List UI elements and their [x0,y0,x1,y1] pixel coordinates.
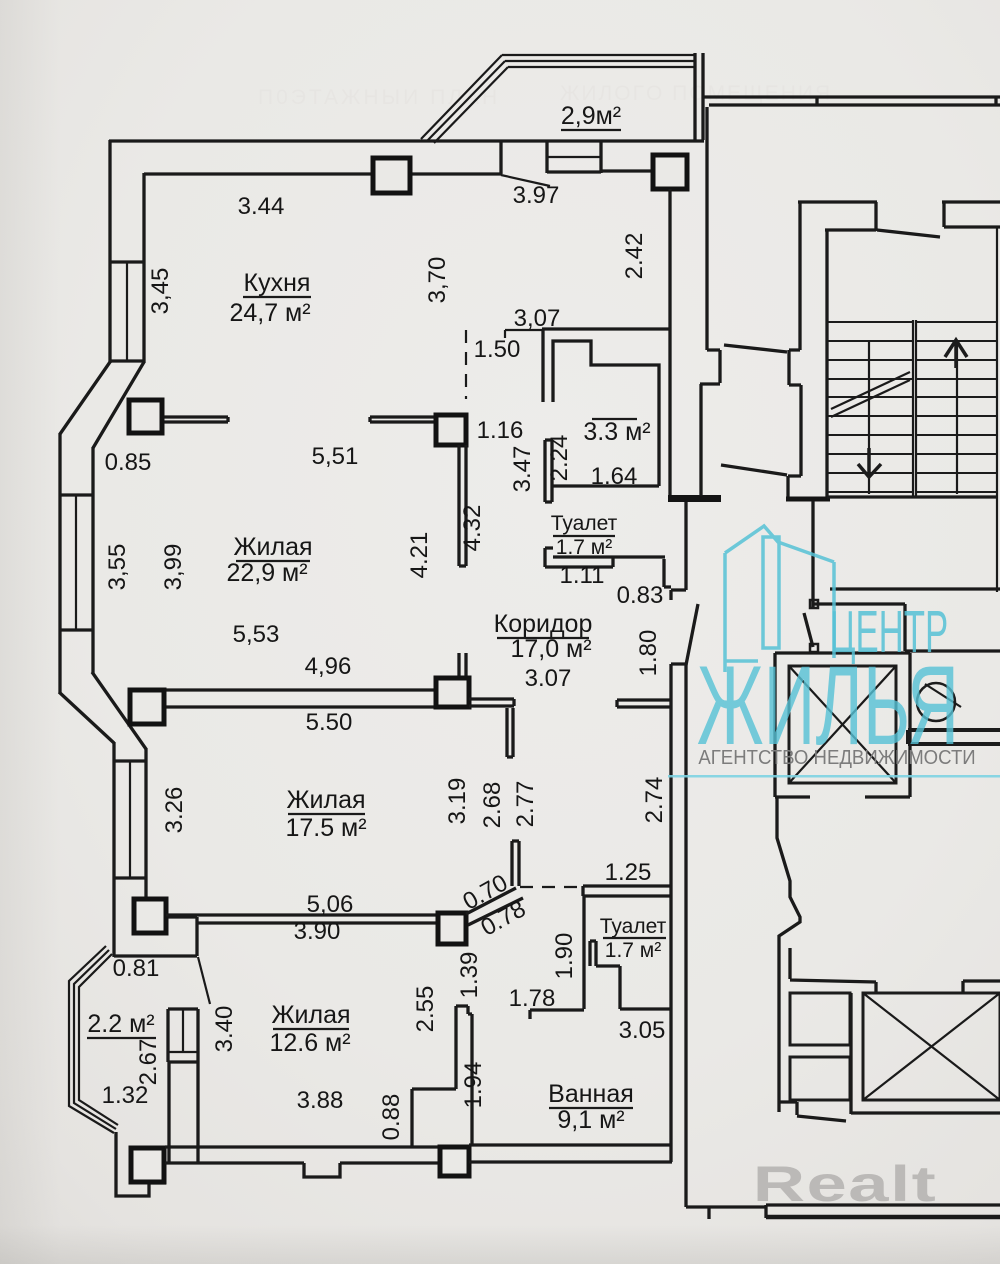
svg-text:3.19: 3.19 [444,778,471,825]
svg-text:Жилая: Жилая [286,786,365,814]
svg-text:3.88: 3.88 [297,1087,344,1114]
svg-text:3,99: 3,99 [160,544,187,591]
svg-text:2.68: 2.68 [479,782,506,829]
svg-text:3.97: 3.97 [513,182,560,209]
svg-text:4.21: 4.21 [406,532,433,579]
svg-text:1.80: 1.80 [635,630,662,677]
svg-text:22,9 м²: 22,9 м² [226,559,307,587]
svg-text:1.16: 1.16 [477,417,524,444]
svg-text:3.90: 3.90 [294,918,341,945]
svg-text:3.26: 3.26 [161,787,188,834]
svg-text:2.77: 2.77 [512,781,539,828]
svg-text:2.42: 2.42 [621,233,648,280]
svg-text:Realt: Realt [753,1157,938,1212]
svg-text:0.83: 0.83 [617,582,664,609]
svg-text:Ванная: Ванная [548,1080,634,1108]
svg-text:1.7 м²: 1.7 м² [605,939,661,962]
svg-text:3.07: 3.07 [525,665,572,692]
svg-text:2.67: 2.67 [135,1039,162,1086]
svg-text:Туалет: Туалет [600,915,667,938]
svg-text:5,06: 5,06 [307,891,354,918]
svg-text:1.50: 1.50 [474,336,521,363]
svg-text:3,07: 3,07 [514,305,561,332]
svg-text:3.47: 3.47 [509,446,536,493]
svg-text:0.81: 0.81 [113,955,160,982]
svg-text:3.05: 3.05 [619,1017,666,1044]
svg-text:Туалет: Туалет [551,512,618,535]
svg-text:5,51: 5,51 [312,443,359,470]
svg-text:Кухня: Кухня [244,269,311,297]
svg-text:4.32: 4.32 [459,505,486,552]
svg-text:2.2 м²: 2.2 м² [87,1010,154,1038]
svg-text:1.64: 1.64 [591,463,638,490]
svg-text:4,96: 4,96 [305,653,352,680]
svg-text:1.11: 1.11 [560,562,605,589]
svg-text:5.50: 5.50 [306,709,353,736]
svg-text:24,7 м²: 24,7 м² [229,299,310,327]
svg-text:1.32: 1.32 [102,1082,149,1109]
svg-text:3,55: 3,55 [104,544,131,591]
svg-text:2.74: 2.74 [641,777,668,824]
svg-text:2.55: 2.55 [412,986,439,1033]
svg-text:17,0 м²: 17,0 м² [510,635,591,663]
svg-text:1.90: 1.90 [551,933,578,980]
svg-text:Жилая: Жилая [233,533,312,561]
svg-text:17.5 м²: 17.5 м² [285,814,366,842]
svg-text:9,1 м²: 9,1 м² [557,1106,624,1134]
svg-text:5,53: 5,53 [233,621,280,648]
svg-text:Коридор: Коридор [494,610,593,638]
svg-text:1.7 м²: 1.7 м² [556,536,612,559]
svg-text:АГЕНТСТВО НЕДВИЖИМОСТИ: АГЕНТСТВО НЕДВИЖИМОСТИ [698,747,975,769]
svg-text:3.40: 3.40 [211,1006,238,1053]
svg-text:1.25: 1.25 [605,859,652,886]
svg-text:2.24: 2.24 [546,435,573,482]
svg-text:12.6 м²: 12.6 м² [269,1029,350,1057]
svg-text:2,9м²: 2,9м² [561,102,621,130]
svg-text:0.85: 0.85 [105,449,152,476]
svg-text:П0ЭТАЖНЫИ ПЛАН: П0ЭТАЖНЫИ ПЛАН [258,86,500,109]
svg-text:1.39: 1.39 [456,952,483,999]
svg-text:3.3 м²: 3.3 м² [583,418,650,446]
svg-text:3,70: 3,70 [424,257,451,304]
svg-text:0.88: 0.88 [378,1094,405,1141]
svg-text:3,45: 3,45 [147,268,174,315]
svg-text:Жилая: Жилая [271,1001,350,1029]
svg-text:1.94: 1.94 [460,1062,487,1109]
svg-text:3.44: 3.44 [238,193,285,220]
svg-text:1.78: 1.78 [509,985,556,1012]
